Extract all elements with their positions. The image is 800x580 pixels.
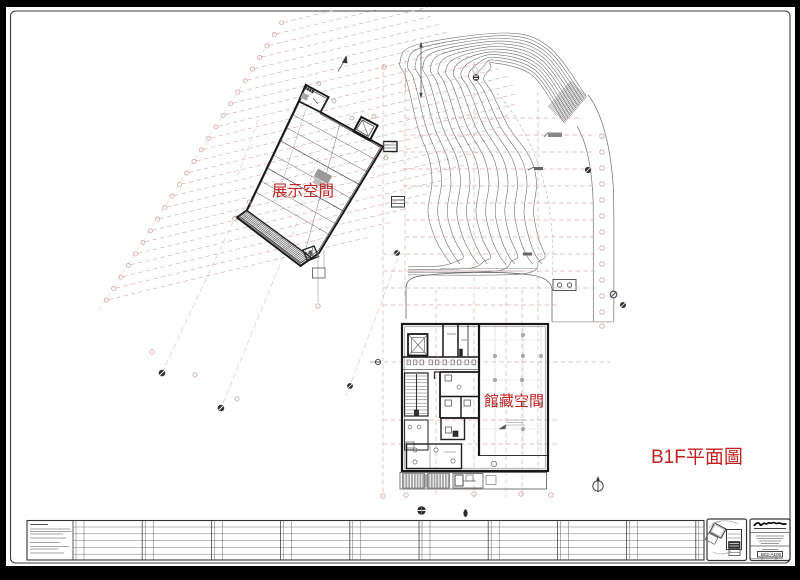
svg-text:B02-A108: B02-A108 [761,552,782,557]
svg-text:館藏空間: 館藏空間 [484,393,544,410]
svg-text:B1F平面圖: B1F平面圖 [651,447,743,468]
svg-text:展示空間: 展示空間 [272,182,334,200]
